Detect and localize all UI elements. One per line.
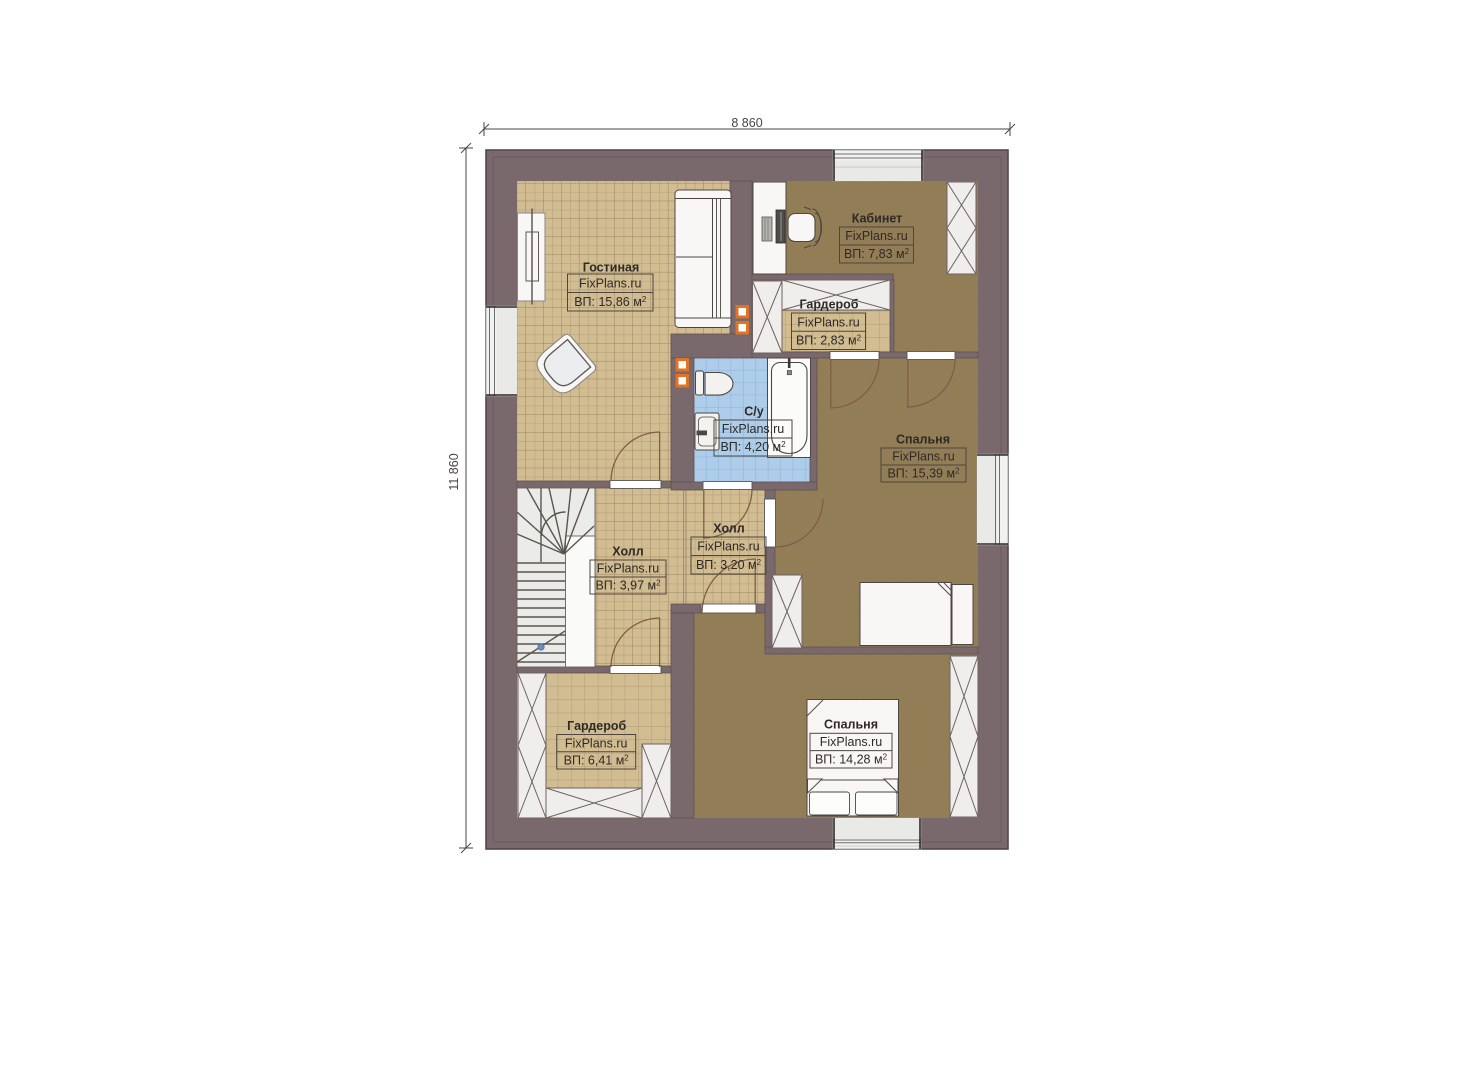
svg-text:С/у: С/у [744, 404, 764, 418]
svg-text:Гардероб: Гардероб [567, 719, 626, 733]
svg-text:FixPlans.ru: FixPlans.ru [597, 562, 660, 576]
svg-text:ВП: 7,83 м2: ВП: 7,83 м2 [844, 247, 910, 261]
svg-text:ВП: 15,39 м2: ВП: 15,39 м2 [887, 467, 960, 481]
svg-text:Кабинет: Кабинет [852, 212, 903, 226]
svg-text:Гардероб: Гардероб [799, 298, 858, 312]
svg-text:FixPlans.ru: FixPlans.ru [697, 539, 760, 553]
svg-text:ВП: 14,28 м2: ВП: 14,28 м2 [815, 753, 888, 767]
svg-text:Спальня: Спальня [896, 432, 950, 446]
svg-text:ВП: 3,97 м2: ВП: 3,97 м2 [595, 579, 661, 593]
svg-text:Холл: Холл [713, 521, 744, 535]
svg-text:FixPlans.ru: FixPlans.ru [565, 736, 628, 750]
svg-text:11 860: 11 860 [447, 453, 461, 490]
svg-text:FixPlans.ru: FixPlans.ru [797, 315, 860, 329]
svg-text:FixPlans.ru: FixPlans.ru [820, 735, 883, 749]
svg-text:FixPlans.ru: FixPlans.ru [845, 229, 908, 243]
svg-text:8 860: 8 860 [731, 116, 762, 130]
svg-text:ВП: 4,20 м2: ВП: 4,20 м2 [720, 440, 786, 454]
svg-text:Холл: Холл [612, 545, 643, 559]
svg-text:ВП: 15,86 м2: ВП: 15,86 м2 [574, 295, 647, 309]
svg-text:Спальня: Спальня [824, 718, 878, 732]
svg-text:ВП: 2,83 м2: ВП: 2,83 м2 [796, 334, 862, 348]
svg-text:Гостиная: Гостиная [583, 261, 640, 275]
svg-text:ВП: 6,41 м2: ВП: 6,41 м2 [564, 754, 630, 768]
svg-text:FixPlans.ru: FixPlans.ru [579, 276, 642, 290]
svg-text:ВП: 3,20 м2: ВП: 3,20 м2 [696, 558, 762, 572]
svg-text:FixPlans.ru: FixPlans.ru [722, 422, 785, 436]
svg-text:FixPlans.ru: FixPlans.ru [892, 450, 955, 464]
